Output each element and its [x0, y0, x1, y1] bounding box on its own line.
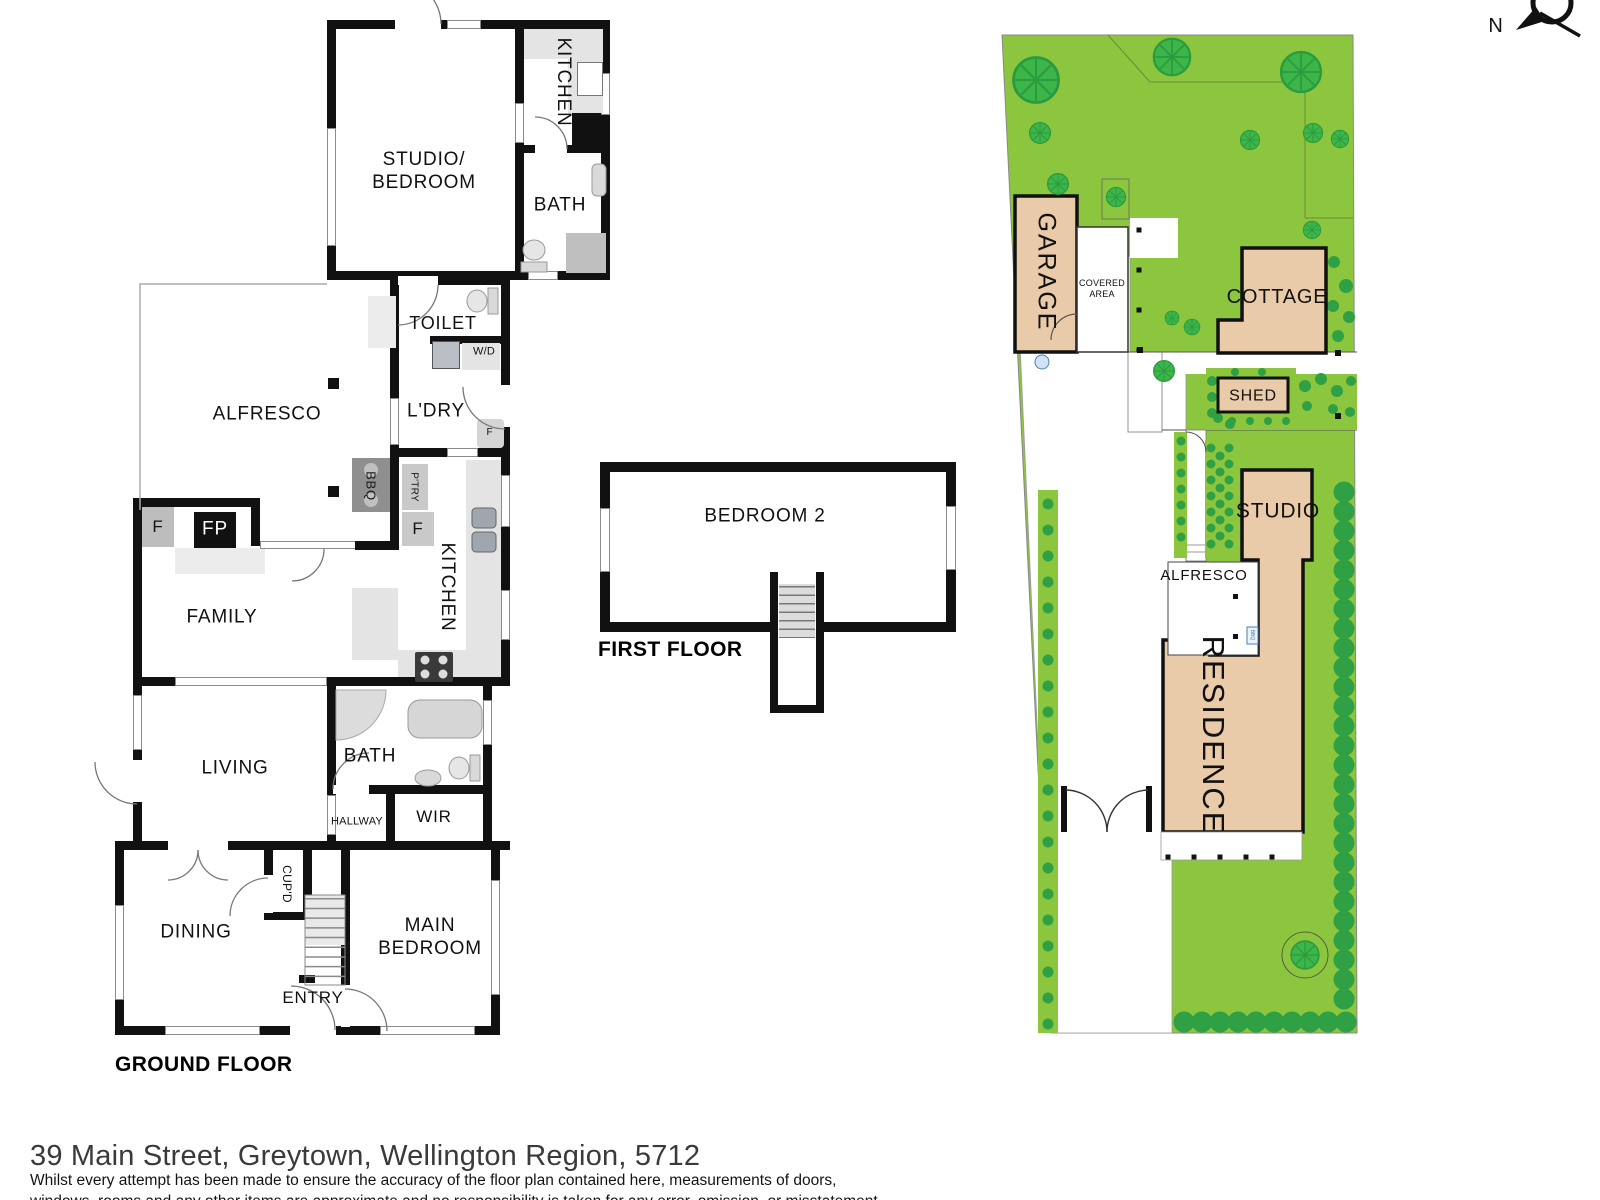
post — [1335, 350, 1341, 356]
site-plan — [1002, 35, 1358, 1033]
site-label-garage: GARAGE — [1032, 213, 1061, 332]
address-line: 39 Main Street, Greytown, Wellington Reg… — [30, 1140, 700, 1173]
label-toilet: TOILET — [409, 313, 476, 335]
label-fp: FP — [202, 519, 228, 542]
first-floor-title: FIRST FLOOR — [598, 638, 742, 662]
floorplan-sheet: STUDIO/ BEDROOM KITCHEN BATH TOILET W/D … — [0, 0, 1600, 1200]
label-wd: W/D — [473, 345, 495, 358]
label-f-ldry: F — [487, 427, 494, 439]
label-kitchen-studio: KITCHEN — [552, 38, 574, 127]
path — [1130, 218, 1178, 258]
label-alfresco: ALFRESCO — [213, 404, 322, 427]
label-bath: BATH — [344, 746, 396, 769]
tap-icon — [1035, 355, 1049, 369]
porch — [1161, 832, 1302, 860]
label-family: FAMILY — [187, 607, 258, 630]
post — [1233, 594, 1238, 599]
label-hallway: HALLWAY — [331, 815, 383, 828]
label-bbq: BBQ — [364, 471, 379, 501]
label-f-kitchen: F — [412, 519, 423, 539]
walkway — [1186, 430, 1206, 561]
compass-north-label: N — [1488, 14, 1503, 38]
label-f-family: F — [152, 517, 163, 537]
disclaimer-line-1: Whilst every attempt has been made to en… — [30, 1172, 836, 1190]
label-wir: WIR — [416, 807, 451, 827]
site-label-studio: STUDIO — [1236, 498, 1320, 523]
gate-post — [1061, 786, 1067, 832]
label-living: LIVING — [201, 758, 268, 781]
label-cupd: CUP'D — [280, 865, 294, 903]
label-ptry: P'TRY — [409, 472, 420, 501]
site-label-alfresco: ALFRESCO — [1160, 567, 1247, 585]
post — [1137, 347, 1143, 353]
site-label-shed: SHED — [1229, 386, 1277, 405]
label-bath-studio: BATH — [534, 195, 586, 218]
label-bedroom2: BEDROOM 2 — [704, 506, 825, 529]
ground-floor-title: GROUND FLOOR — [115, 1053, 292, 1077]
disclaimer-line-2: windows, rooms and any other items are a… — [30, 1193, 882, 1200]
label-dining: DINING — [160, 922, 231, 945]
label-kitchen: KITCHEN — [436, 543, 458, 632]
label-entry: ENTRY — [282, 988, 343, 1008]
label-main-bedroom: MAIN BEDROOM — [378, 915, 482, 961]
gate-post — [1146, 786, 1152, 832]
site-label-covered-area: COVERED AREA — [1079, 278, 1125, 300]
compass-icon — [1516, 0, 1580, 36]
label-ldry: L'DRY — [407, 401, 465, 424]
site-label-cottage: COTTAGE — [1227, 285, 1328, 309]
plan-graphics — [0, 0, 1600, 1200]
label-studio-bedroom: STUDIO/ BEDROOM — [372, 149, 476, 195]
alfresco-boundary — [140, 284, 327, 510]
post — [1335, 413, 1341, 419]
post — [1233, 634, 1238, 639]
site-label-residence: RESIDENCE — [1195, 636, 1231, 835]
site-label-bbq: BBQ — [1249, 630, 1255, 641]
